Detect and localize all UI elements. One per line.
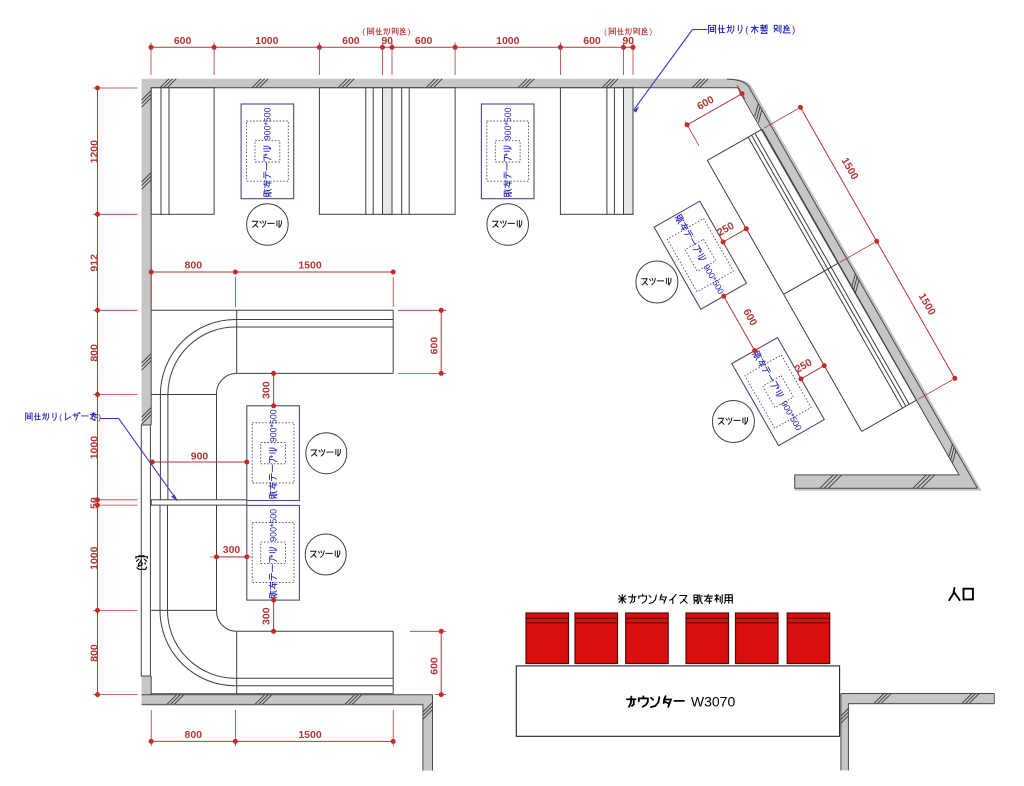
svg-text:600: 600 [429,657,441,675]
svg-text:300: 300 [261,381,273,399]
svg-text:1500: 1500 [298,260,322,272]
svg-text:(: ( [604,28,607,37]
svg-text:): ) [792,25,795,35]
svg-text:1000: 1000 [88,546,100,570]
svg-text:800: 800 [185,260,203,272]
svg-text:800: 800 [185,729,203,741]
svg-text:(: ( [59,412,62,422]
svg-text:900*500: 900*500 [268,409,278,442]
svg-text:1000: 1000 [88,436,100,460]
svg-text:600: 600 [429,337,441,355]
svg-text:900*500: 900*500 [263,107,273,140]
svg-text:600: 600 [342,35,360,47]
svg-text:1000: 1000 [255,35,279,47]
svg-text:1500: 1500 [298,729,322,741]
svg-text:900: 900 [191,451,209,463]
svg-text:): ) [98,412,101,422]
svg-text:600: 600 [583,35,601,47]
svg-text:600: 600 [415,35,433,47]
svg-text:W3070: W3070 [691,693,736,709]
svg-text:1200: 1200 [88,140,100,164]
svg-text:(: ( [745,25,748,35]
svg-text:(: ( [362,28,365,37]
svg-text:): ) [408,28,411,37]
svg-text:1000: 1000 [496,35,520,47]
svg-text:300: 300 [223,544,241,556]
svg-text:600: 600 [174,35,192,47]
svg-text:90: 90 [622,35,634,47]
svg-text:800: 800 [88,344,100,362]
svg-text:300: 300 [261,607,273,625]
svg-text:912: 912 [88,254,100,272]
svg-text:90: 90 [381,35,393,47]
svg-text:): ) [649,28,652,37]
svg-text:800: 800 [88,644,100,662]
svg-text:900*500: 900*500 [503,107,513,140]
svg-text:50: 50 [88,497,100,509]
svg-text:900*500: 900*500 [268,509,278,542]
